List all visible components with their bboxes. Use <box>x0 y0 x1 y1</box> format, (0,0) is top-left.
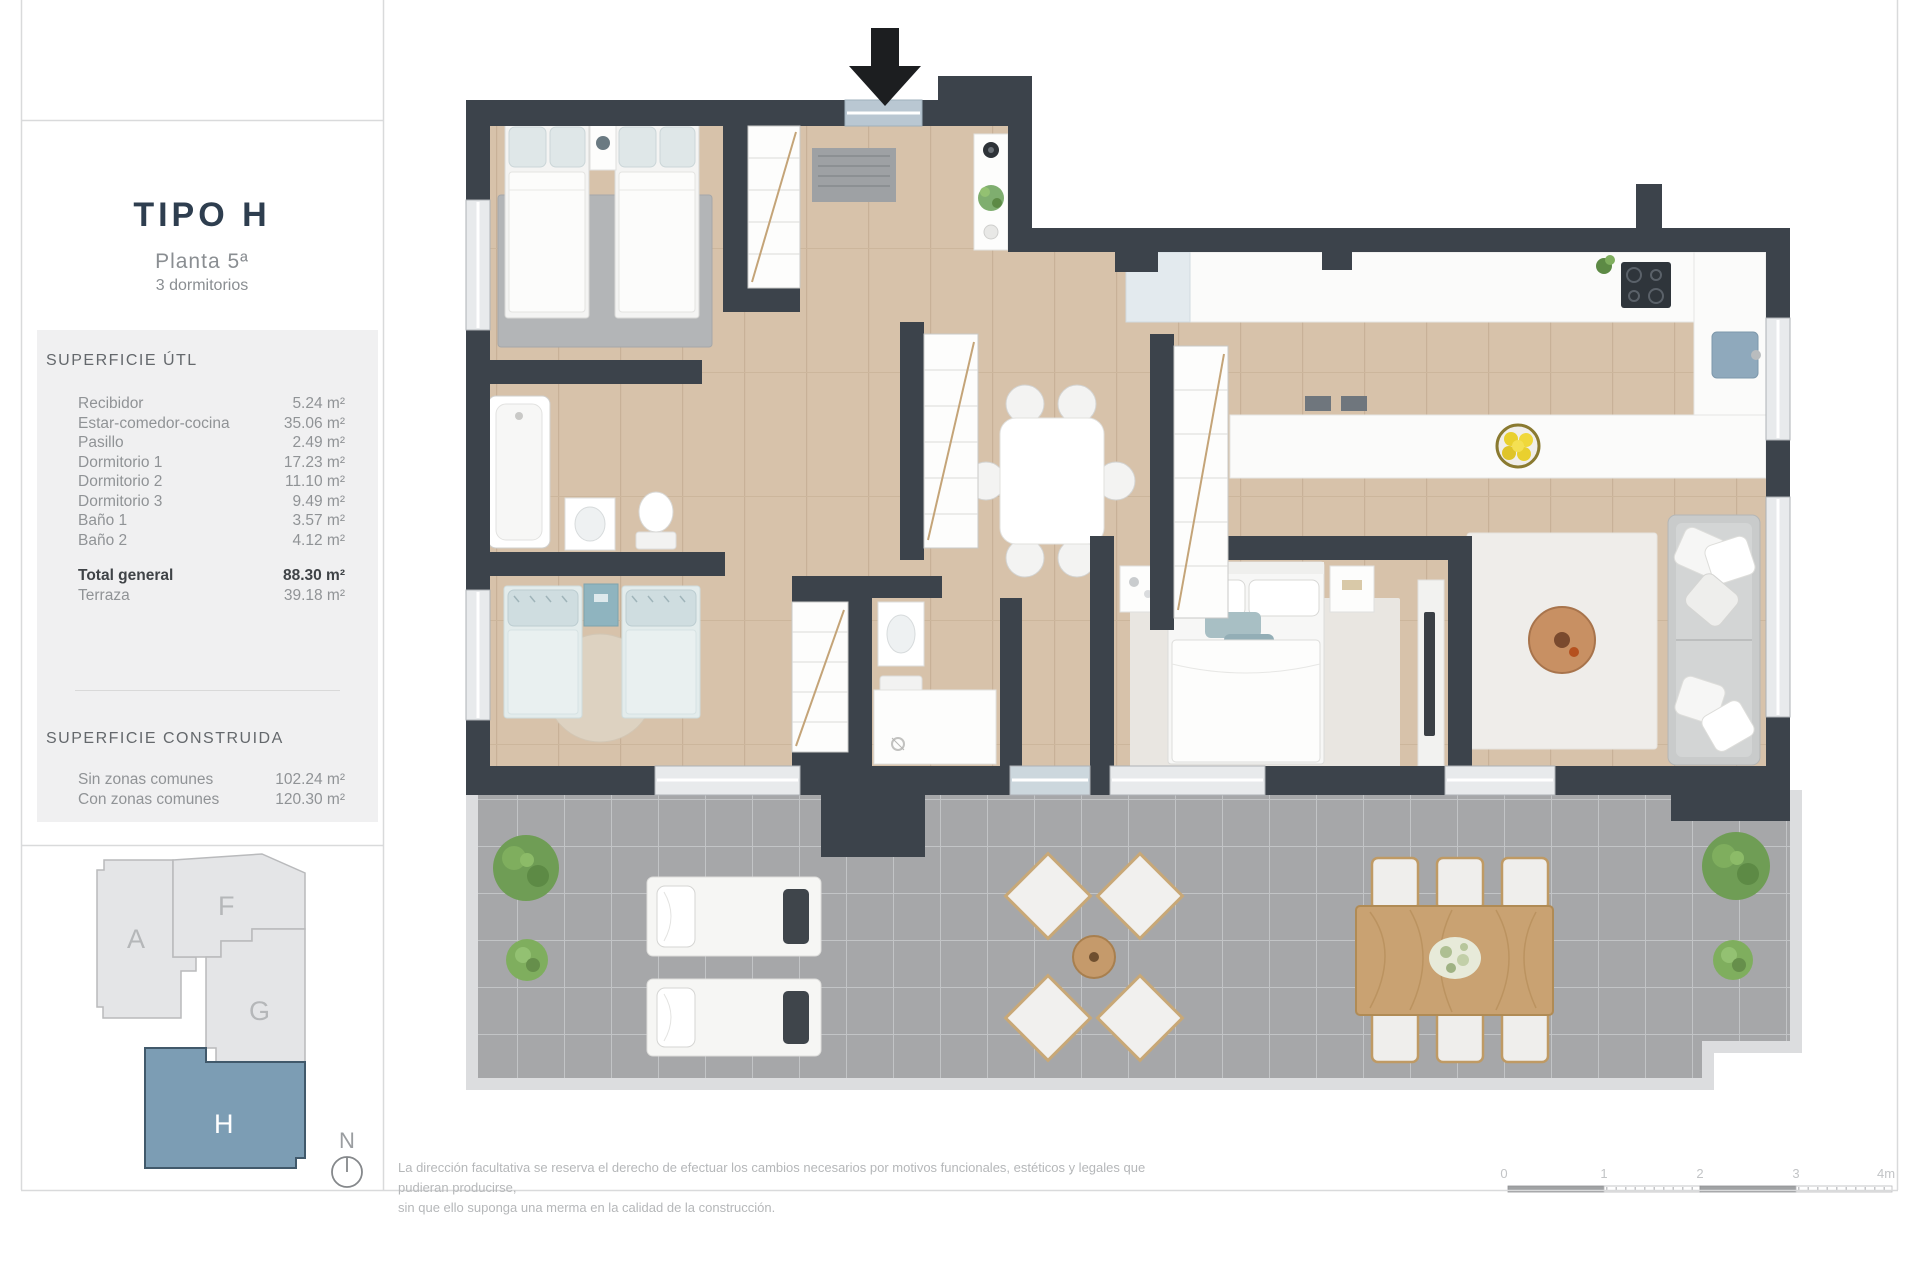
washbasin <box>878 602 924 666</box>
scale-bar: 0 1 2 3 4m <box>1500 1166 1895 1192</box>
wardrobe <box>748 126 800 288</box>
living-room <box>1467 515 1760 765</box>
terrace <box>466 790 1802 1090</box>
sun-lounger <box>647 979 821 1056</box>
scale-tick: 3 <box>1792 1166 1799 1181</box>
bar-stool <box>1305 396 1331 411</box>
wardrobe <box>792 602 848 752</box>
floorplan-sheet: { "sidebar": { "title": "TIPO H", "subti… <box>0 0 1920 1280</box>
surface-row: Sin zonas comunes102.24 m² <box>78 770 345 790</box>
surface-row: Pasillo2.49 m² <box>78 433 345 453</box>
window <box>466 200 490 330</box>
keyplan-label-h: H <box>214 1109 234 1139</box>
toilet <box>636 492 676 549</box>
totals-block: Total general88.30 m² Terraza39.18 m² <box>78 566 345 605</box>
scale-tick: 1 <box>1600 1166 1607 1181</box>
surface-row: Estar-comedor-cocina35.06 m² <box>78 414 345 434</box>
disclaimer-line1: La dirección facultativa se reserva el d… <box>398 1160 1145 1195</box>
panel-divider <box>75 690 340 691</box>
disclaimer: La dirección facultativa se reserva el d… <box>398 1158 1158 1218</box>
wardrobe <box>1174 346 1228 618</box>
window <box>466 590 490 720</box>
bedroom-3 <box>498 120 712 347</box>
north-compass-icon: N <box>332 1128 362 1187</box>
nightstand <box>584 584 618 626</box>
window <box>655 766 800 795</box>
bedrooms-subtitle: 3 dormitorios <box>21 277 383 295</box>
surface-row: Recibidor5.24 m² <box>78 394 345 414</box>
keyplan-label-g: G <box>249 996 270 1026</box>
keyplan-label-a: A <box>127 924 145 954</box>
surface-row: Dormitorio 117.23 m² <box>78 453 345 473</box>
scale-tick: 0 <box>1500 1166 1507 1181</box>
washbasin <box>565 498 615 550</box>
keyplan-label-f: F <box>218 891 235 921</box>
superficie-construida-heading: SUPERFICIE CONSTRUIDA <box>46 730 284 748</box>
entrance-arrow-icon <box>849 28 921 106</box>
surface-row: Baño 24.12 m² <box>78 531 345 551</box>
terrace-door <box>1010 766 1090 795</box>
sofa <box>1668 515 1760 765</box>
disclaimer-line2: sin que ello suponga una merma en la cal… <box>398 1200 775 1215</box>
wardrobe <box>924 334 978 548</box>
dining-table <box>1000 418 1104 544</box>
keyplan-building-h <box>145 1048 305 1168</box>
surface-row: Con zonas comunes120.30 m² <box>78 790 345 810</box>
surface-row: Baño 13.57 m² <box>78 511 345 531</box>
window <box>1110 766 1265 795</box>
floor-subtitle: Planta 5ª <box>21 250 383 274</box>
shower <box>874 690 996 764</box>
single-bed <box>622 586 700 718</box>
surface-row: Dormitorio 39.49 m² <box>78 492 345 512</box>
bar-stool <box>1341 396 1367 411</box>
sun-lounger <box>647 877 821 956</box>
surface-panel: SUPERFICIE ÚTL Recibidor5.24 m² Estar-co… <box>37 330 378 822</box>
superficie-util-heading: SUPERFICIE ÚTL <box>46 352 198 370</box>
single-bed <box>615 122 699 318</box>
terrace-dining-set <box>1356 858 1553 1062</box>
bedroom-2 <box>504 584 700 742</box>
scale-tick: 4m <box>1877 1166 1895 1181</box>
vase-icon <box>596 136 610 150</box>
north-label: N <box>339 1128 355 1153</box>
single-bed <box>505 122 589 318</box>
tv-icon <box>1424 612 1435 736</box>
terraza-row: Terraza39.18 m² <box>78 586 345 606</box>
superficie-util-list: Recibidor5.24 m² Estar-comedor-cocina35.… <box>78 394 345 550</box>
keyplan: A F G H <box>97 854 305 1168</box>
cooktop-icon <box>1621 262 1671 308</box>
window <box>1766 497 1790 717</box>
window <box>1445 766 1555 795</box>
total-row: Total general88.30 m² <box>78 566 345 586</box>
scale-tick: 2 <box>1696 1166 1703 1181</box>
surface-row: Dormitorio 211.10 m² <box>78 472 345 492</box>
window <box>1766 318 1790 440</box>
page-title: TIPO H <box>21 196 383 235</box>
superficie-construida-list: Sin zonas comunes102.24 m² Con zonas com… <box>78 770 345 809</box>
lemon-bowl-icon <box>1497 425 1539 467</box>
single-bed <box>504 586 582 718</box>
